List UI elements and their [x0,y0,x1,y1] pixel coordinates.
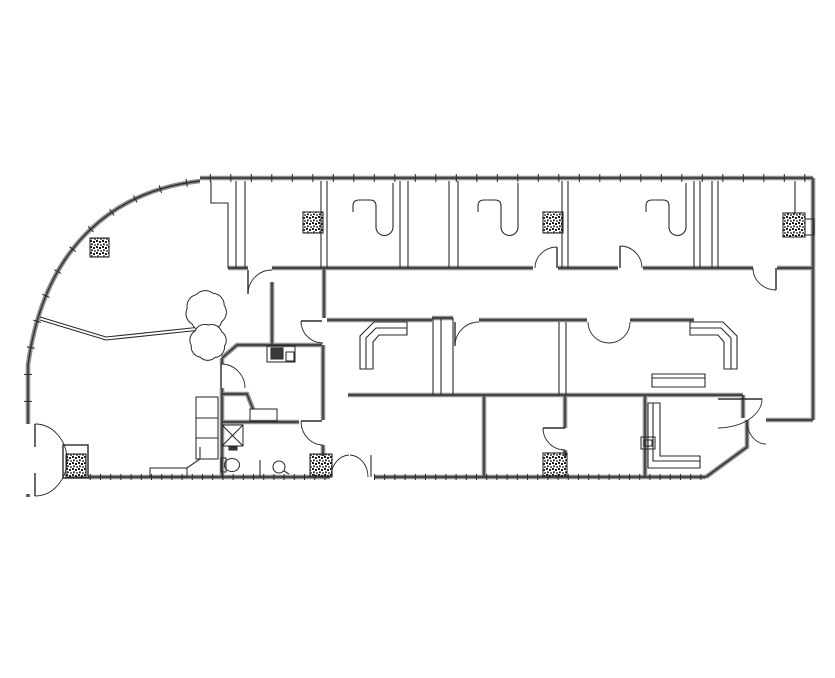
door-swing-arc [620,246,642,268]
door-swing-arc [535,247,557,268]
door-swing-arc [301,421,323,445]
walls-core-layer [28,178,813,497]
door-swing-arc [248,270,272,294]
plant-symbol [190,324,226,360]
door-swing-arc [221,364,245,388]
column-hatch [303,212,323,233]
door-swing-arc [588,322,609,343]
door-swing-arc [350,455,368,477]
floor-plan-canvas [0,0,835,678]
toilet-fixture [225,459,240,472]
door-swing-arc [301,321,323,343]
door-swing-arc [331,455,349,477]
door-swing-arc [35,460,67,496]
door-swing-arc [753,268,776,290]
doors-layer [35,246,776,496]
floor-plan-svg [0,0,835,678]
column-hatch [90,238,109,257]
column-hatch [543,453,567,477]
column-hatch [783,213,805,237]
plants-layer [186,291,226,361]
door-swing-arc [455,322,479,346]
mullion-ticks-layer [24,174,805,480]
door-swing-arc [747,421,766,444]
column-hatch [543,212,563,233]
walls-thin-layer [40,181,795,477]
sink-fixture [273,461,285,473]
column-hatch [310,454,332,477]
door-swing-arc [35,424,67,460]
column-hatch [66,454,86,477]
door-swing-arc [609,322,630,343]
door-swing-arc [718,399,762,428]
walls-poche-layer [28,178,813,497]
door-swing-arc [543,428,565,450]
